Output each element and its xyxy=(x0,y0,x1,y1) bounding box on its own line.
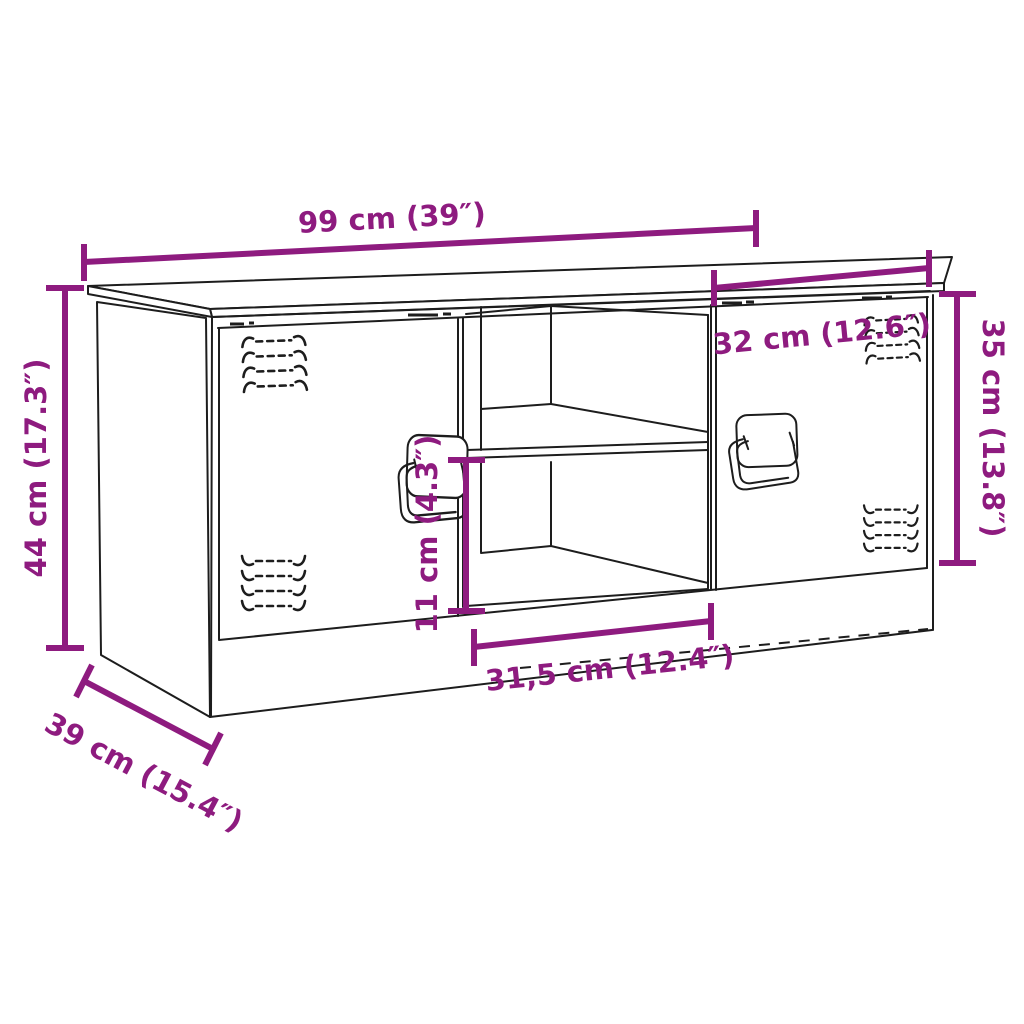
dimension-label-right-door-height: 35 cm (13.8″) xyxy=(976,319,1010,538)
left-side-panel xyxy=(97,302,210,717)
hinge-mark-left-door-right xyxy=(408,314,451,315)
front-left-corner-edge xyxy=(211,318,212,716)
hinge-mark-right-door-right xyxy=(862,297,892,298)
dimension-label-overall-height: 44 cm (17.3″) xyxy=(19,359,53,578)
hinge-mark-right-door-left xyxy=(722,302,754,303)
dimension-label-shelf-opening-height: 11 cm (4.3″) xyxy=(410,435,444,634)
dimension-diagram: 99 cm (39″) 32 cm (12.6″) 35 cm (13.8″) … xyxy=(0,0,1024,1024)
cabinet-dimension-drawing: 99 cm (39″) 32 cm (12.6″) 35 cm (13.8″) … xyxy=(0,0,1024,1024)
hinge-mark-left-door-left xyxy=(230,323,254,324)
